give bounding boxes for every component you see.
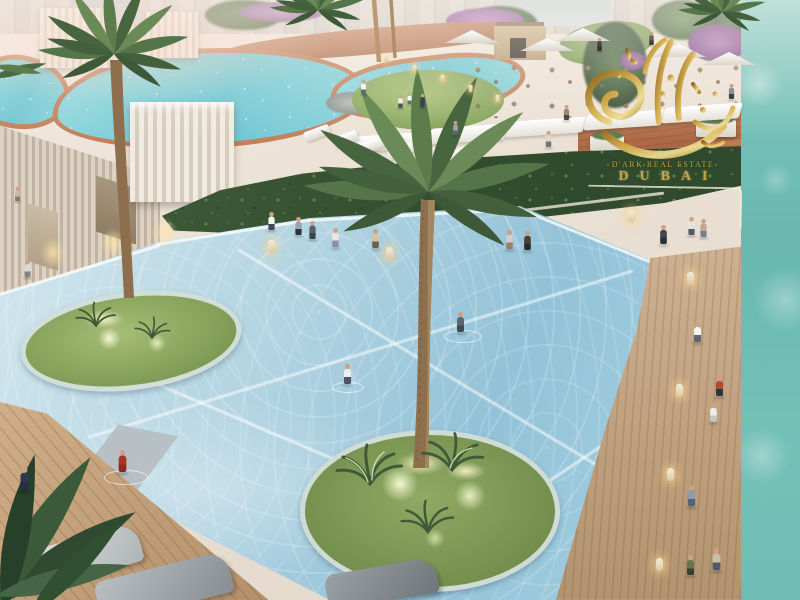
person	[524, 236, 531, 250]
person	[506, 235, 513, 249]
person	[457, 317, 464, 332]
bollard	[268, 240, 275, 253]
uplight	[396, 452, 446, 475]
bollard	[441, 75, 445, 82]
bollard	[667, 468, 674, 481]
person	[372, 234, 379, 248]
person	[453, 125, 458, 136]
person	[408, 96, 412, 104]
person	[15, 191, 20, 202]
person	[713, 554, 721, 571]
person	[119, 456, 127, 473]
watermark-city-text: DUBAI	[584, 169, 742, 185]
bollard	[469, 85, 473, 92]
person	[268, 217, 274, 231]
person	[716, 381, 723, 396]
person	[564, 109, 569, 120]
person	[546, 135, 552, 147]
uplight	[84, 310, 124, 328]
person	[332, 233, 339, 247]
resort-pool-rendering: D'ARK REAL ESTATE DUBAI	[0, 0, 800, 600]
person	[398, 98, 403, 108]
person	[660, 230, 667, 244]
person	[309, 226, 315, 240]
person	[295, 222, 301, 236]
person	[361, 84, 366, 95]
bollard	[656, 558, 663, 571]
watermark-logo-calligraphy	[575, 26, 750, 168]
bollard	[687, 272, 694, 285]
white-handrail-line	[588, 185, 743, 230]
bollard	[676, 384, 683, 397]
person	[344, 369, 351, 384]
person	[694, 327, 701, 342]
wall-light	[152, 218, 178, 248]
person	[710, 408, 717, 422]
uplight	[446, 462, 486, 480]
bollard	[386, 247, 393, 260]
person	[25, 264, 31, 277]
sunbed	[447, 144, 475, 162]
bollard	[385, 55, 389, 62]
person	[420, 97, 425, 107]
person	[687, 560, 694, 575]
bollard	[413, 65, 417, 72]
person	[688, 490, 695, 506]
wall-light	[100, 228, 126, 258]
bollard	[496, 95, 500, 102]
person	[20, 473, 28, 490]
watermark-brand-text: D'ARK REAL ESTATE	[584, 160, 742, 169]
wall-light	[40, 238, 66, 268]
